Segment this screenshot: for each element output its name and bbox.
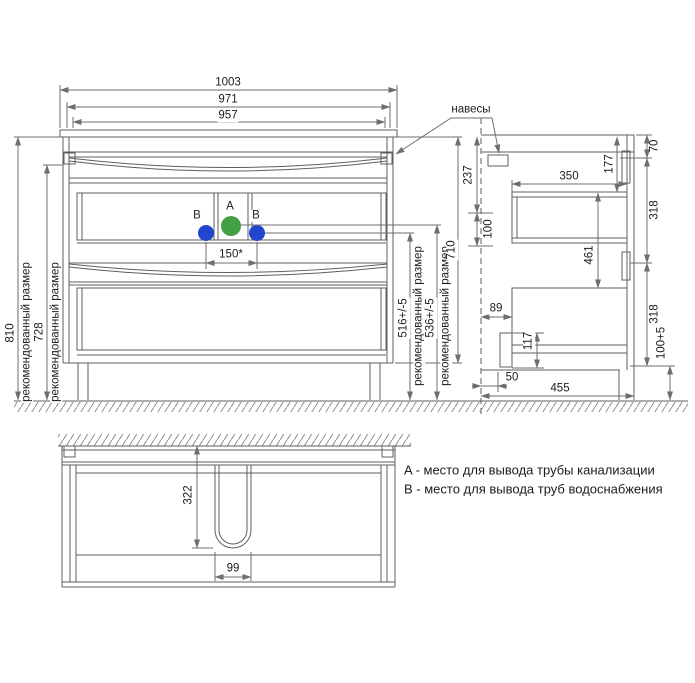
dim-side-89: 89 [489,303,504,315]
dim-side-leg-height: 100+5 [656,326,668,360]
technical-drawing: 1003 971 957 810 рекомендованный размер … [0,0,695,683]
drawing-linework [0,0,695,683]
note-recommended-size-2: рекомендованный размер [50,261,62,403]
legend-line-b: B - место для вывода труб водоснабжения [403,483,664,496]
note-recommended-size-4: рекомендованный размер [440,245,452,387]
dim-supply-height: 516+/-5 [398,297,410,338]
wall-hatching [58,434,411,446]
dimension-lines [14,85,675,581]
point-b-left-circle [198,225,214,241]
dim-side-461: 461 [584,244,596,265]
dim-front-width-basin: 957 [217,110,238,122]
dim-cabinet-height: 710 [446,239,458,260]
dim-front-width-outer: 971 [217,94,238,106]
dim-side-237: 237 [463,164,475,185]
dim-side-50: 50 [505,372,520,384]
point-b-left-label: B [192,210,202,222]
note-recommended-size-3: рекомендованный размер [413,245,425,387]
point-a-label: A [225,201,235,213]
note-recommended-size-1: рекомендованный размер [21,261,33,403]
front-view-linework [60,130,397,400]
dim-drain-height: 536+/-5 [425,297,437,338]
handle-upper [622,151,630,183]
handle-lower [622,252,630,280]
dim-side-70: 70 [649,139,661,154]
dim-side-177: 177 [604,153,616,174]
dim-front-width-total: 1003 [214,77,242,89]
floor-hatching [14,401,688,412]
dim-side-350: 350 [558,171,579,183]
countertop [60,130,397,137]
siphon-cutout-inner [219,465,247,544]
dim-plan-99: 99 [226,563,241,575]
dim-side-318-upper: 318 [649,199,661,220]
dim-side-100: 100 [483,218,495,239]
dim-front-height-728: 728 [34,321,46,342]
dim-side-117: 117 [523,331,535,351]
dim-front-height-total: 810 [5,322,17,343]
dim-side-318-lower: 318 [649,303,661,324]
dim-side-455: 455 [549,383,570,395]
point-a-circle [221,216,241,236]
point-b-right-circle [249,225,265,241]
hangers-callout: навесы [450,104,491,116]
dim-plan-322: 322 [183,484,195,505]
point-b-right-label: B [251,210,261,222]
legend-line-a: A - место для вывода трубы канализации [403,464,656,477]
hanger-bracket-side [488,155,508,166]
dim-supply-spacing: 150* [218,249,244,261]
